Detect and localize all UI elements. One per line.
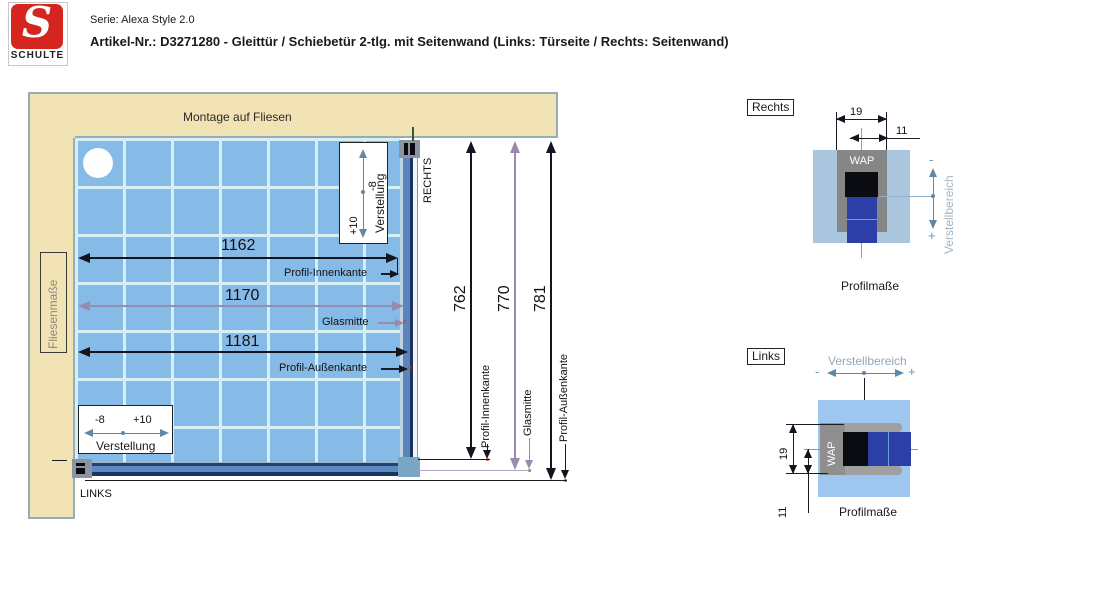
- dim-width-innenkante-line: [88, 257, 388, 259]
- label-profil-aussenkante: Profil-Außenkante: [279, 362, 367, 374]
- adjust-arrow-dot: [931, 194, 935, 198]
- detail-right-adjust-line: [933, 176, 934, 220]
- detail-left-profile-arm-bottom: [845, 466, 902, 475]
- detail-right-minus: -: [929, 152, 933, 167]
- detail-right-plus: +: [928, 228, 936, 243]
- extension-line-aussenkante: [85, 480, 567, 481]
- top-banner-label: Montage auf Fliesen: [183, 110, 292, 124]
- dim-width-aussenkante-value: 1181: [225, 333, 259, 351]
- fliesenmasse-label: Fliesenmaße: [46, 257, 60, 349]
- adjust-arrow-right: [160, 429, 169, 437]
- side-label-rechts: RECHTS: [422, 145, 434, 203]
- pointer-line: [565, 444, 566, 470]
- arrowhead-down: [510, 458, 520, 470]
- green-tick: [412, 127, 414, 141]
- adjust-arrow-up: [359, 149, 367, 158]
- arrowhead-left: [78, 347, 90, 357]
- adjust-arrow-dot: [361, 190, 365, 194]
- detail-right-wap-label: WAP: [837, 155, 887, 167]
- arrowhead-right: [396, 347, 408, 357]
- arrowhead-down: [804, 465, 812, 474]
- detail-right-glass-blue: [847, 197, 877, 243]
- pointer-arrow-right: [390, 270, 399, 278]
- logo-wordmark: SCHULTE: [9, 50, 66, 61]
- arrowhead-up: [789, 424, 797, 433]
- adjust-plus-value: +10: [348, 197, 360, 235]
- bottom-left-bracket: [72, 459, 92, 478]
- adjustment-box-vertical: -8 +10 Verstellung: [339, 142, 388, 244]
- pointer-arrow-right: [399, 365, 408, 373]
- endpoint-marker: [408, 366, 411, 369]
- detail-left-profile-arm-top: [845, 423, 902, 432]
- detail-left-glass-blue: [868, 432, 911, 466]
- top-wall-banner: [28, 92, 558, 138]
- adjust-arrow-left: [84, 429, 93, 437]
- article-line: Artikel-Nr.: D3271280 - Gleittür / Schie…: [90, 34, 729, 49]
- adjust-arrow-line: [92, 433, 160, 434]
- dim-height-innenkante-line: [470, 151, 472, 449]
- connector-line: [879, 196, 933, 197]
- label-glasmitte: Glasmitte: [322, 316, 368, 328]
- arrowhead-down: [546, 468, 556, 480]
- pointer-line: [381, 368, 401, 370]
- detail-left-title: Links: [747, 348, 785, 365]
- detail-left-dim11-line: [808, 449, 809, 513]
- glass-cross-line: [888, 432, 889, 466]
- arrowhead-down: [789, 465, 797, 474]
- dim-height-aussenkante-line: [550, 151, 552, 470]
- dim-height-innenkante-value: 762: [452, 268, 470, 312]
- arrowhead-up: [546, 141, 556, 153]
- dim-width-aussenkante-line: [88, 351, 398, 353]
- dim-width-glasmitte-line: [88, 305, 394, 307]
- adjust-arrow-up: [929, 168, 937, 177]
- pointer-arrow-down: [525, 460, 533, 469]
- side-label-links: LINKS: [80, 488, 112, 500]
- series-line: Serie: Alexa Style 2.0: [90, 14, 195, 26]
- pointer-line: [529, 438, 530, 460]
- pointer-arrow-down: [561, 470, 569, 479]
- adjust-label: Verstellung: [96, 439, 155, 453]
- glass-cross-line: [847, 219, 877, 220]
- arrowhead-left: [78, 253, 90, 263]
- logo-s-letter: S: [11, 0, 63, 47]
- pointer-line: [378, 322, 396, 324]
- bottom-right-connector: [398, 457, 420, 477]
- adjust-arrow-dot: [121, 431, 125, 435]
- arrowhead-up: [466, 141, 476, 153]
- label-profil-innenkante: Profil-Innenkante: [284, 267, 367, 279]
- detail-right-glass-end: [845, 172, 878, 197]
- top-wall-bracket: [399, 140, 420, 158]
- door-profile-strip-5: [417, 140, 418, 462]
- detail-left-wap-label: WAP: [826, 432, 838, 466]
- extension-line-glasmitte: [418, 470, 530, 471]
- dim-width-glasmitte-value: 1170: [225, 287, 259, 305]
- detail-left-dim11-value: 11: [777, 496, 789, 518]
- detail-left-glass-end: [843, 432, 868, 466]
- label-profil-aussenkante-v: Profil-Außenkante: [558, 326, 570, 442]
- detail-right-dim11-value: 11: [896, 125, 907, 137]
- logo-red-square: S: [11, 4, 63, 49]
- bottom-door-profile: [78, 462, 418, 476]
- arrowhead-right: [879, 134, 888, 142]
- detail-left-plus: +: [908, 364, 916, 379]
- detail-right-caption: Profilmaße: [841, 279, 899, 293]
- bracket-anchor-glyph: [76, 463, 85, 474]
- adjust-minus-value: -8: [95, 414, 105, 426]
- extension-line-innenkante: [418, 459, 490, 460]
- arrowhead-up: [804, 449, 812, 458]
- door-profile-strip-2: [403, 140, 410, 462]
- arrowhead-left: [836, 115, 845, 123]
- detail-left-dim19-value: 19: [778, 438, 790, 460]
- adjust-arrow-right: [895, 369, 904, 377]
- detail-right-title: Rechts: [747, 99, 794, 116]
- detail-right-adjust-label: Verstellbereich: [942, 158, 956, 254]
- detail-right-dim19-value: 19: [850, 106, 862, 118]
- fliesenmasse-box: Fliesenmaße: [40, 252, 67, 353]
- adjust-arrow-left: [827, 369, 836, 377]
- left-band-tick: [52, 460, 67, 461]
- adjustment-box-horizontal: -8 +10 Verstellung: [78, 405, 173, 454]
- detail-left-minus: -: [815, 364, 819, 379]
- endpoint-marker: [403, 320, 406, 323]
- arrowhead-right: [392, 301, 404, 311]
- adjust-arrow-dot: [862, 371, 866, 375]
- wall-fixture-circle: [83, 148, 113, 178]
- dim-height-glasmitte-value: 770: [496, 268, 514, 312]
- dim-height-aussenkante-value: 781: [532, 268, 550, 312]
- detail-left-caption: Profilmaße: [839, 505, 897, 519]
- adjust-label: Verstellung: [373, 159, 387, 233]
- dim-height-glasmitte-line: [514, 151, 516, 460]
- schulte-logo: S SCHULTE: [8, 2, 68, 66]
- arrowhead-down: [466, 447, 476, 459]
- dim-width-innenkante-value: 1162: [221, 237, 255, 255]
- adjust-arrow-down: [359, 229, 367, 238]
- adjust-plus-value: +10: [133, 414, 152, 426]
- bracket-anchor-glyph: [404, 143, 415, 155]
- drawing-sheet: S SCHULTE Serie: Alexa Style 2.0 Artikel…: [0, 0, 1116, 592]
- arrowhead-right: [878, 115, 887, 123]
- detail-left-adjust-label: Verstellbereich: [828, 354, 907, 368]
- arrowhead-left: [850, 134, 859, 142]
- label-profil-innenkante-v: Profil-Innenkante: [480, 340, 492, 448]
- label-glasmitte-v: Glasmitte: [522, 374, 534, 436]
- banner-corner: [30, 94, 75, 138]
- arrowhead-up: [510, 141, 520, 153]
- arrowhead-left: [78, 301, 90, 311]
